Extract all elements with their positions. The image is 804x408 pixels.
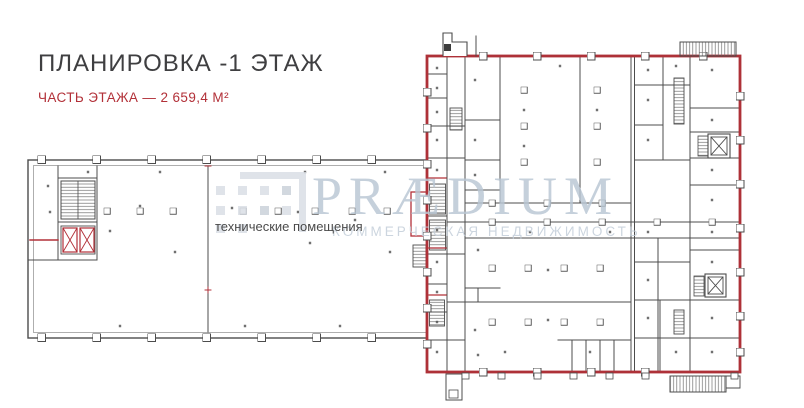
- floor-area-subtitle: ЧАСТЬ ЭТАЖА — 2 659,4 М²: [38, 90, 324, 105]
- header: ПЛАНИРОВКА -1 ЭТАЖ ЧАСТЬ ЭТАЖА — 2 659,4…: [38, 50, 324, 105]
- watermark-tagline: КОММЕРЧЕСКАЯ НЕДВИЖИМОСТЬ: [332, 224, 641, 239]
- exterior-stair-icon: [680, 42, 736, 56]
- staircase-icon: [413, 245, 426, 267]
- watermark-brand: PRÆDIUM: [312, 166, 619, 226]
- exterior-stair-icon: [670, 376, 726, 392]
- technical-rooms-label: технические помещения: [215, 219, 363, 234]
- page-title: ПЛАНИРОВКА -1 ЭТАЖ: [38, 50, 324, 78]
- slide: ПЛАНИРОВКА -1 ЭТАЖ ЧАСТЬ ЭТАЖА — 2 659,4…: [0, 0, 804, 408]
- staircase-icon: [61, 181, 95, 219]
